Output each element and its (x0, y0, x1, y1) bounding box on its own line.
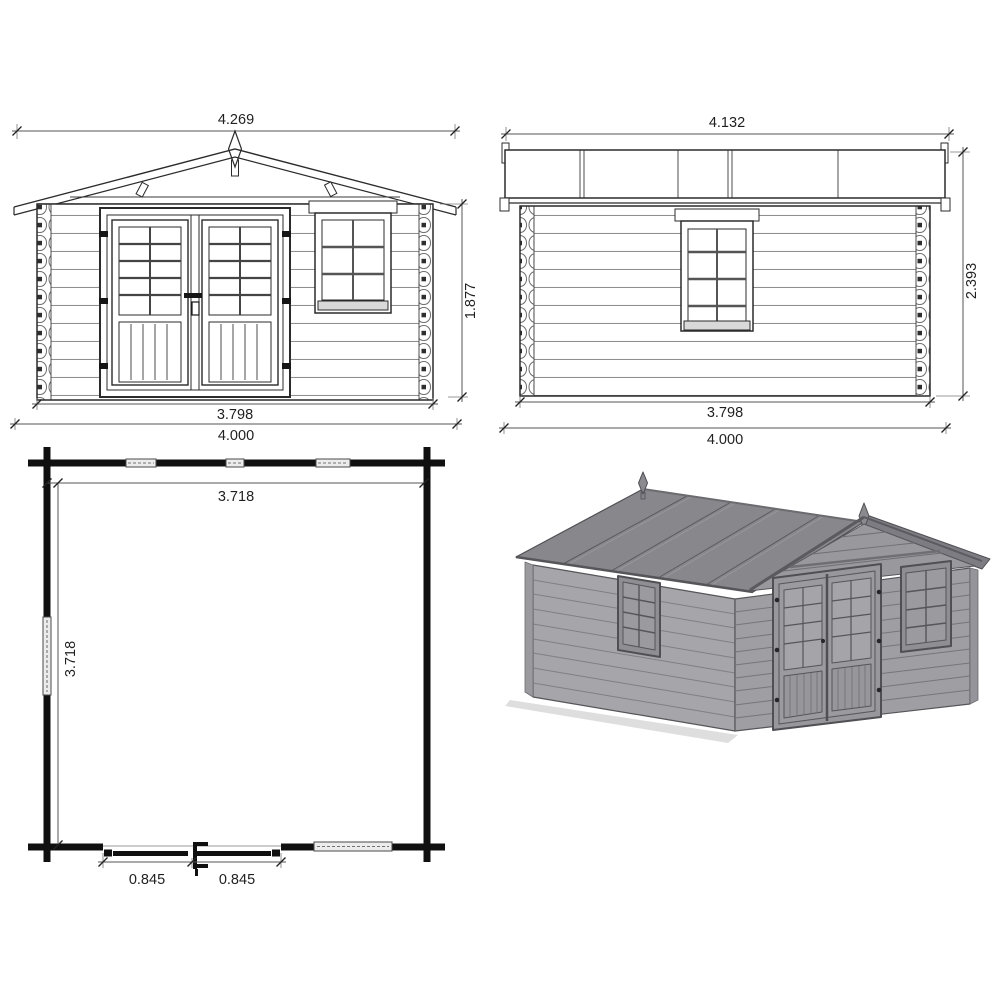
roof-bracket (325, 182, 337, 197)
side-roof (500, 143, 950, 211)
plan-window-markers (43, 459, 392, 851)
side-dim-top: 4.132 (501, 115, 954, 141)
plan-dim-depth: 3.718 (54, 479, 80, 850)
front-dim-height: 1.877 (440, 199, 479, 402)
plan-dim-doors: 0.845 0.845 (98, 853, 286, 888)
front-dim-overall-width-label: 4.000 (218, 428, 254, 444)
iso-front-double-door (773, 564, 881, 730)
log-ends-right (916, 206, 930, 396)
iso-left-wall-window (618, 576, 660, 657)
front-dim-height-label: 1.877 (463, 283, 479, 319)
front-elevation-view: 4.269 (10, 112, 479, 444)
log-ends-left (37, 204, 51, 400)
iso-corner-log-ends-far (525, 562, 533, 697)
technical-drawing-page: 4.269 (0, 0, 1000, 1000)
plan-dim-door-right-label: 0.845 (219, 872, 255, 888)
side-dim-bottom: 3.798 4.000 (499, 396, 951, 448)
plan-dim-door-left-label: 0.845 (129, 872, 165, 888)
front-dim-top-width-label: 4.269 (218, 112, 254, 128)
iso-front-window (901, 561, 951, 652)
side-window (675, 209, 759, 331)
iso-corner-log-ends-near (970, 568, 978, 704)
log-ends-left (520, 206, 534, 396)
plan-walls (28, 447, 445, 862)
front-roof-finial (229, 131, 242, 176)
floor-plan-view: 3.718 3.718 0.845 0.845 (28, 447, 445, 888)
iso-door-handle (821, 639, 825, 643)
side-dim-top-width-label: 4.132 (709, 115, 745, 131)
plan-door-opening (103, 842, 281, 852)
front-double-door (99, 208, 291, 397)
front-dim-wall-width-label: 3.798 (217, 407, 253, 423)
side-dim-overall-width-label: 4.000 (707, 432, 743, 448)
roof-bracket (136, 182, 148, 197)
log-ends-right (419, 204, 433, 400)
window-sill (318, 301, 388, 310)
side-dim-height-label: 2.393 (964, 263, 980, 299)
front-dim-bottom: 3.798 4.000 (10, 398, 462, 444)
side-elevation-view: 4.132 (499, 115, 980, 448)
front-window (309, 201, 397, 313)
isometric-view (505, 472, 990, 743)
plan-dim-width: 3.718 (43, 479, 429, 506)
plan-dim-inner-width-label: 3.718 (218, 489, 254, 505)
side-dim-wall-width-label: 3.798 (707, 405, 743, 421)
plan-dim-inner-depth-label: 3.718 (63, 641, 79, 677)
technical-drawing-canvas: 4.269 (0, 0, 1000, 1000)
window-sill (684, 321, 750, 330)
